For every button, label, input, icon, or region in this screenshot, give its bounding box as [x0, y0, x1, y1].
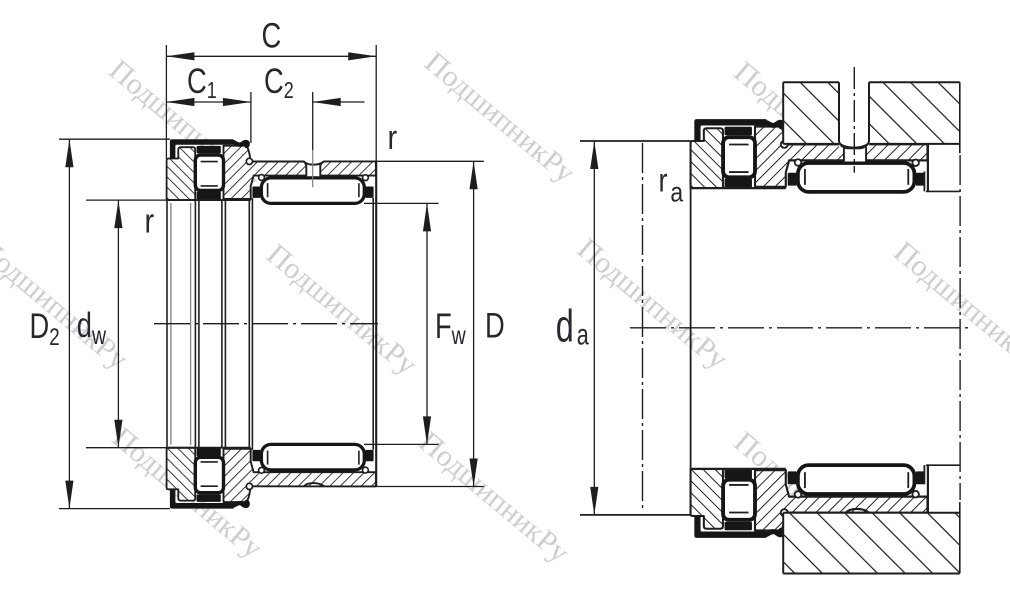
svg-text:D: D [485, 306, 505, 345]
svg-text:r: r [388, 118, 398, 157]
svg-text:C: C [262, 16, 282, 55]
svg-text:r: r [145, 201, 155, 240]
